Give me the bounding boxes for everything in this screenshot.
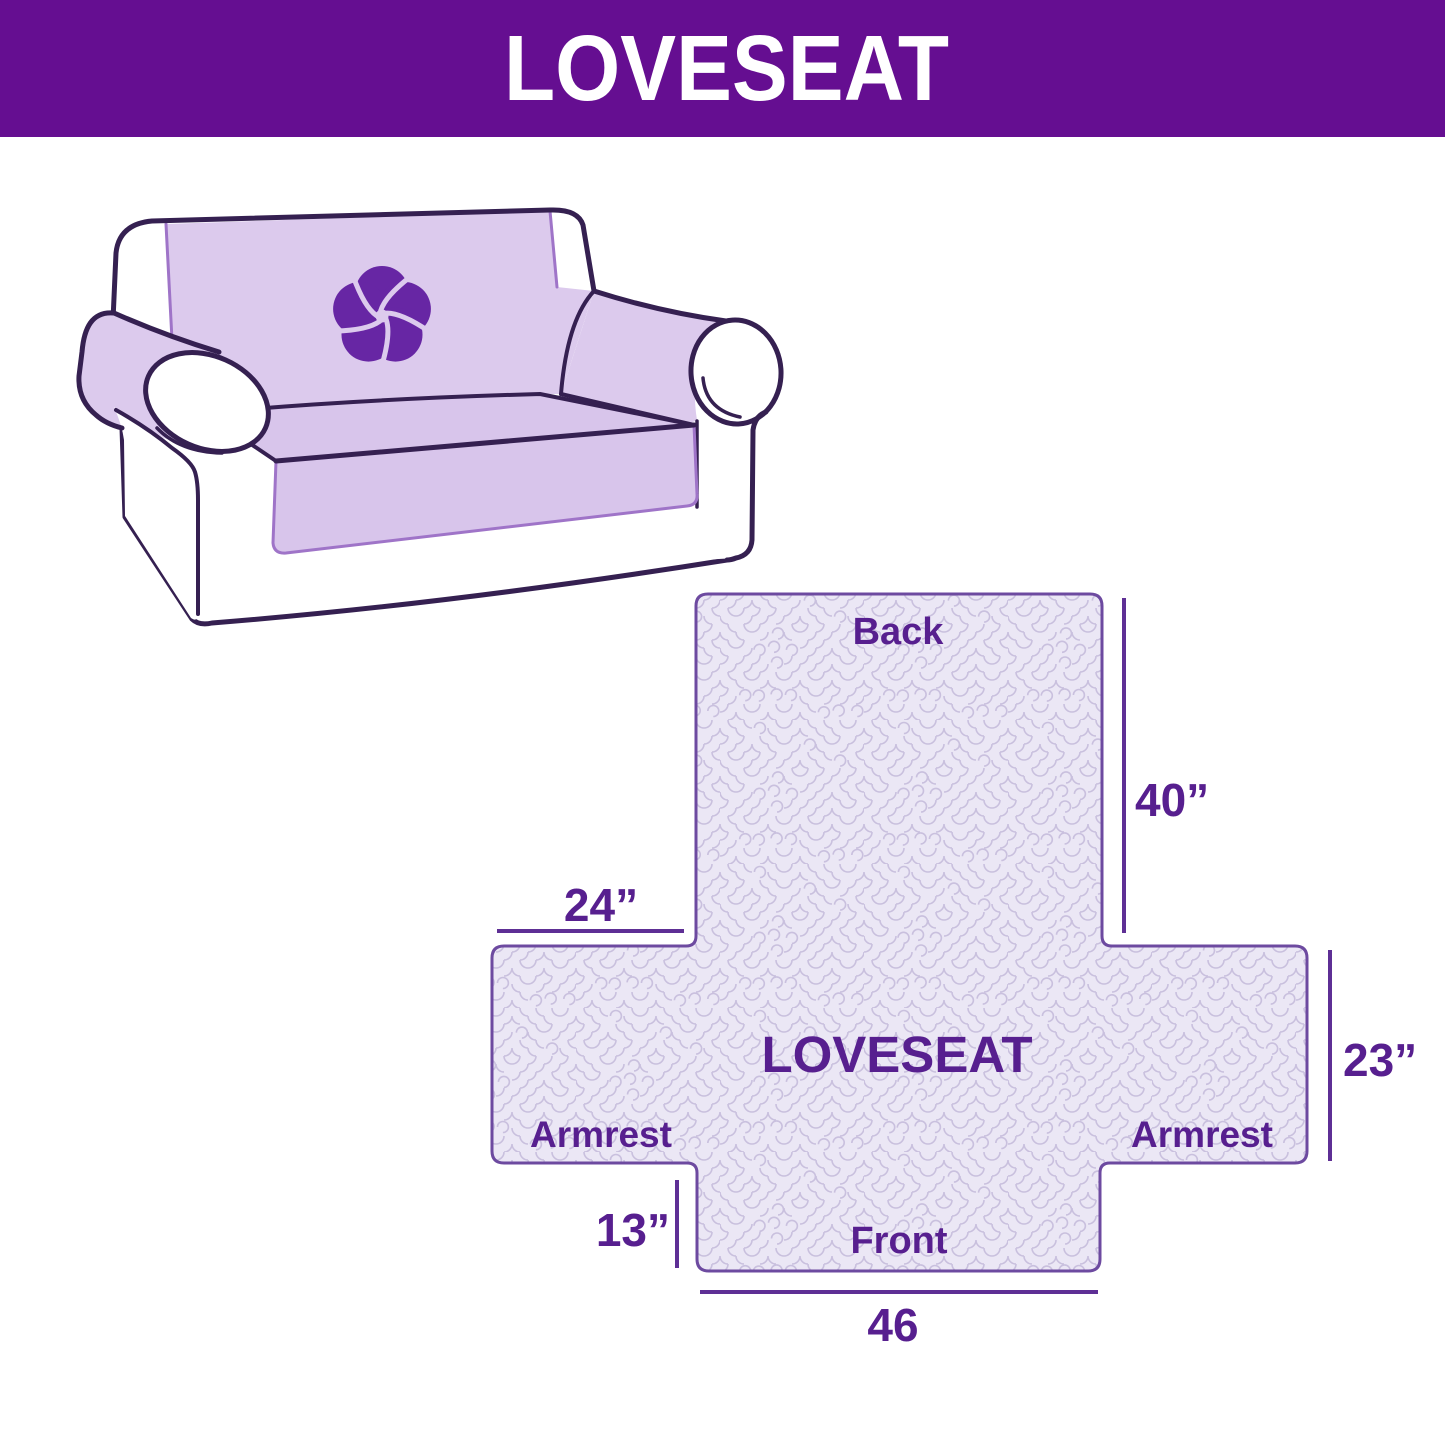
svg-text:Armrest: Armrest xyxy=(1131,1114,1273,1155)
svg-text:Front: Front xyxy=(850,1220,947,1262)
svg-text:LOVESEAT: LOVESEAT xyxy=(761,1026,1032,1083)
svg-text:Armrest: Armrest xyxy=(530,1114,672,1155)
svg-text:23”: 23” xyxy=(1343,1034,1417,1086)
svg-text:40”: 40” xyxy=(1135,774,1209,826)
svg-text:24”: 24” xyxy=(564,879,638,931)
svg-text:46: 46 xyxy=(867,1299,918,1351)
svg-text:13”: 13” xyxy=(596,1204,670,1256)
svg-text:Back: Back xyxy=(853,611,945,653)
